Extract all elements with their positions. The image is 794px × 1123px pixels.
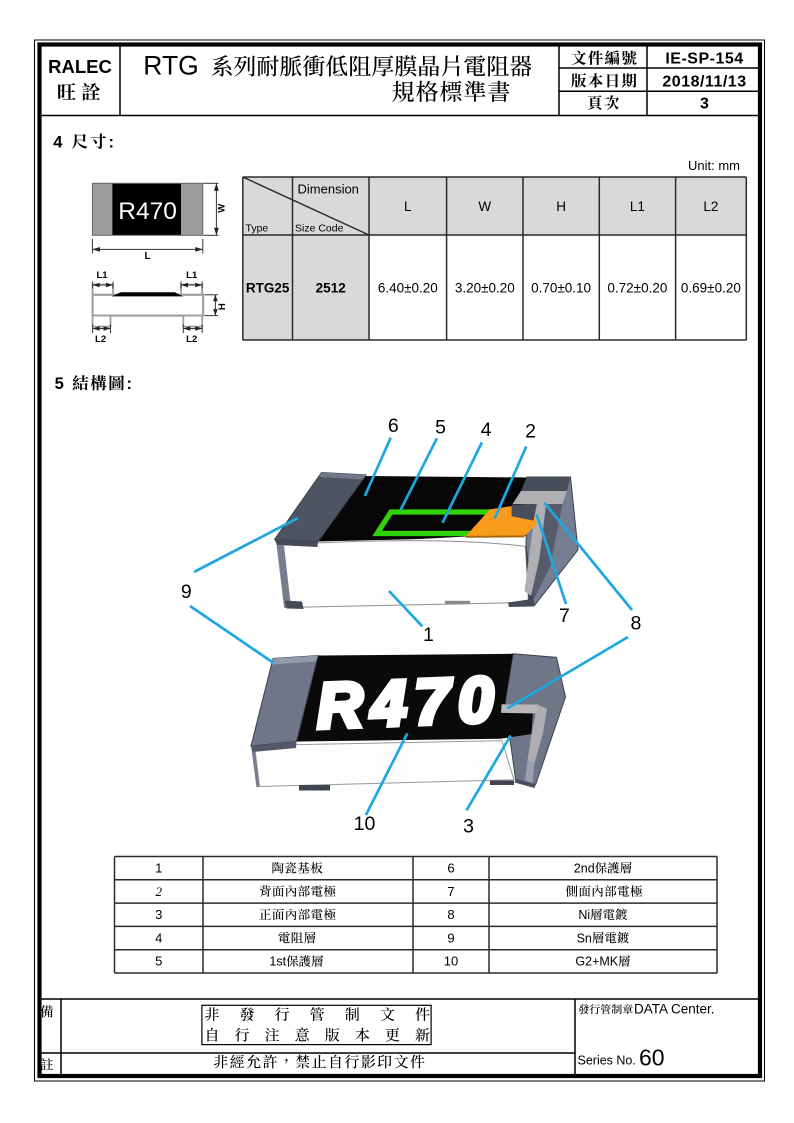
svg-text:3: 3 (463, 816, 474, 838)
svg-text:L: L (145, 251, 151, 262)
svg-text:RTG: RTG (143, 51, 198, 81)
svg-text:RALEC: RALEC (48, 56, 112, 77)
svg-text:8: 8 (630, 613, 641, 635)
svg-text:3: 3 (155, 907, 162, 922)
svg-text:2: 2 (525, 421, 536, 443)
svg-text:1: 1 (155, 861, 162, 876)
svg-text:L2: L2 (186, 334, 197, 345)
svg-text:DATA Center.: DATA Center. (634, 1001, 715, 1016)
svg-text:R470: R470 (315, 663, 503, 742)
svg-text:RTG25: RTG25 (246, 281, 290, 296)
svg-text:Ni: Ni (578, 908, 590, 922)
svg-text:5: 5 (155, 954, 162, 969)
svg-text:10: 10 (354, 813, 376, 835)
svg-text:6: 6 (388, 415, 399, 437)
svg-text:0.69±0.20: 0.69±0.20 (681, 281, 741, 296)
svg-text:1: 1 (423, 624, 434, 646)
svg-text:4: 4 (53, 134, 63, 152)
svg-text::: : (109, 134, 115, 152)
svg-text:4: 4 (481, 419, 492, 441)
svg-text:0.72±0.20: 0.72±0.20 (607, 281, 667, 296)
svg-text:L1: L1 (96, 270, 108, 281)
svg-text:H: H (217, 303, 228, 310)
svg-text:Series No.: Series No. (578, 1054, 636, 1068)
svg-text:L1: L1 (186, 270, 198, 281)
svg-text:Sn: Sn (577, 931, 592, 945)
svg-text:3.20±0.20: 3.20±0.20 (455, 281, 515, 296)
svg-text:Size Code: Size Code (295, 223, 344, 235)
svg-text:3: 3 (700, 95, 709, 112)
svg-text::: : (127, 375, 133, 393)
svg-text:4: 4 (155, 930, 162, 945)
svg-text:2018/11/13: 2018/11/13 (662, 73, 746, 90)
svg-text:Type: Type (246, 223, 269, 235)
svg-text:L1: L1 (630, 199, 645, 214)
svg-text:7: 7 (559, 605, 570, 627)
svg-text:1st: 1st (269, 955, 286, 969)
svg-text:6: 6 (447, 861, 454, 876)
svg-text:L2: L2 (95, 334, 106, 345)
svg-text:9: 9 (447, 930, 454, 945)
svg-text:0.70±0.10: 0.70±0.10 (531, 281, 591, 296)
svg-text:L: L (404, 199, 412, 214)
svg-text:2512: 2512 (316, 281, 346, 296)
svg-text:2nd: 2nd (574, 862, 595, 876)
svg-text:6.40±0.20: 6.40±0.20 (378, 281, 438, 296)
svg-text:5: 5 (435, 416, 446, 438)
svg-text:2: 2 (155, 884, 162, 899)
svg-text:G2+MK: G2+MK (575, 955, 618, 969)
svg-text:W: W (217, 204, 228, 213)
svg-text:5: 5 (55, 375, 64, 393)
svg-text:10: 10 (444, 954, 458, 969)
svg-text:7: 7 (447, 884, 454, 899)
svg-text:Unit: mm: Unit: mm (688, 158, 740, 173)
svg-text:R470: R470 (118, 198, 177, 225)
svg-text:L2: L2 (703, 199, 718, 214)
svg-text:8: 8 (447, 907, 454, 922)
svg-text:H: H (556, 199, 566, 214)
svg-text:Dimension: Dimension (298, 181, 359, 196)
svg-text:60: 60 (639, 1045, 665, 1071)
svg-text:IE-SP-154: IE-SP-154 (665, 51, 743, 68)
svg-text:9: 9 (181, 581, 192, 603)
svg-text:W: W (478, 199, 491, 214)
